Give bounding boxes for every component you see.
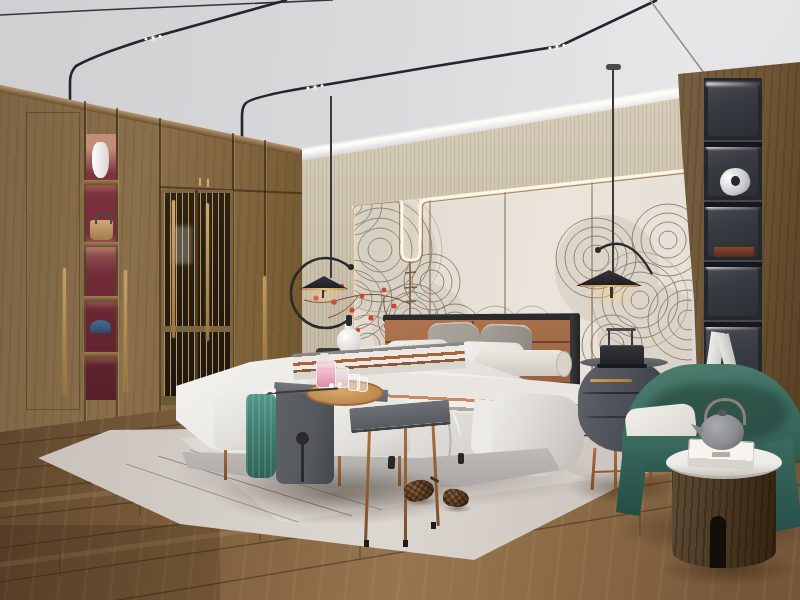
- cabinet-handle: [207, 179, 209, 187]
- shelf-led-strip: [706, 82, 760, 86]
- shelf-back-panel: [708, 86, 758, 136]
- shelf-sculpture-hole: [731, 176, 740, 186]
- bedroom-scene: [0, 0, 800, 600]
- shelf-back-panel: [708, 268, 758, 316]
- side-table-foot: [431, 522, 436, 529]
- shelf-divider: [704, 140, 762, 147]
- lattice-garment: [172, 226, 192, 264]
- drum-table-notch: [710, 516, 726, 568]
- bench-leg: [338, 452, 341, 486]
- teapot-lid-knob: [718, 410, 727, 416]
- saddle-table-slit: [301, 442, 304, 482]
- teapot-body: [700, 414, 744, 450]
- bead: [271, 388, 276, 393]
- niche-shelf: [84, 180, 118, 185]
- cabinet-handle: [199, 178, 201, 186]
- wardrobe-handle: [206, 203, 209, 341]
- wardrobe-door-frame: [26, 112, 80, 410]
- box-label: [712, 452, 730, 457]
- niche-handbag-handle: [95, 212, 112, 224]
- glass-cup: [357, 377, 368, 392]
- bead: [329, 383, 334, 388]
- pendant-arc-right: [590, 238, 660, 278]
- niche-cap: [90, 320, 111, 333]
- bench-leg: [224, 446, 227, 480]
- pendant-stem-left: [322, 290, 324, 298]
- nightstand-handle: [590, 379, 632, 382]
- side-table-foot: [403, 540, 408, 547]
- side-table-foot: [364, 540, 369, 547]
- pendant-canopy-right: [606, 64, 621, 70]
- bed-foot: [458, 453, 464, 464]
- wardrobe-seam: [116, 108, 118, 417]
- pendant-stem-right: [610, 287, 613, 298]
- bead: [337, 382, 342, 387]
- wardrobe-handle: [124, 270, 127, 392]
- pendant-shade-rim-right: [580, 285, 638, 287]
- wardrobe-handle: [63, 268, 66, 394]
- perfume-cap: [320, 353, 329, 361]
- track-led-dots: [144, 34, 565, 91]
- niche-vase: [92, 142, 109, 178]
- trolley-lamp-base: [597, 364, 647, 368]
- bead: [263, 389, 268, 394]
- pendant-shade-rim-left: [302, 288, 346, 290]
- wardrobe-handle: [172, 200, 175, 338]
- teal-towel: [246, 394, 276, 478]
- shelf-divider: [704, 200, 762, 207]
- shelf-divider: [704, 320, 762, 327]
- niche-shelf: [84, 352, 118, 357]
- niche-shelf: [84, 242, 118, 247]
- shelf-divider: [704, 260, 762, 267]
- shelf-wood-box: [714, 247, 754, 257]
- niche-shelf: [84, 296, 118, 301]
